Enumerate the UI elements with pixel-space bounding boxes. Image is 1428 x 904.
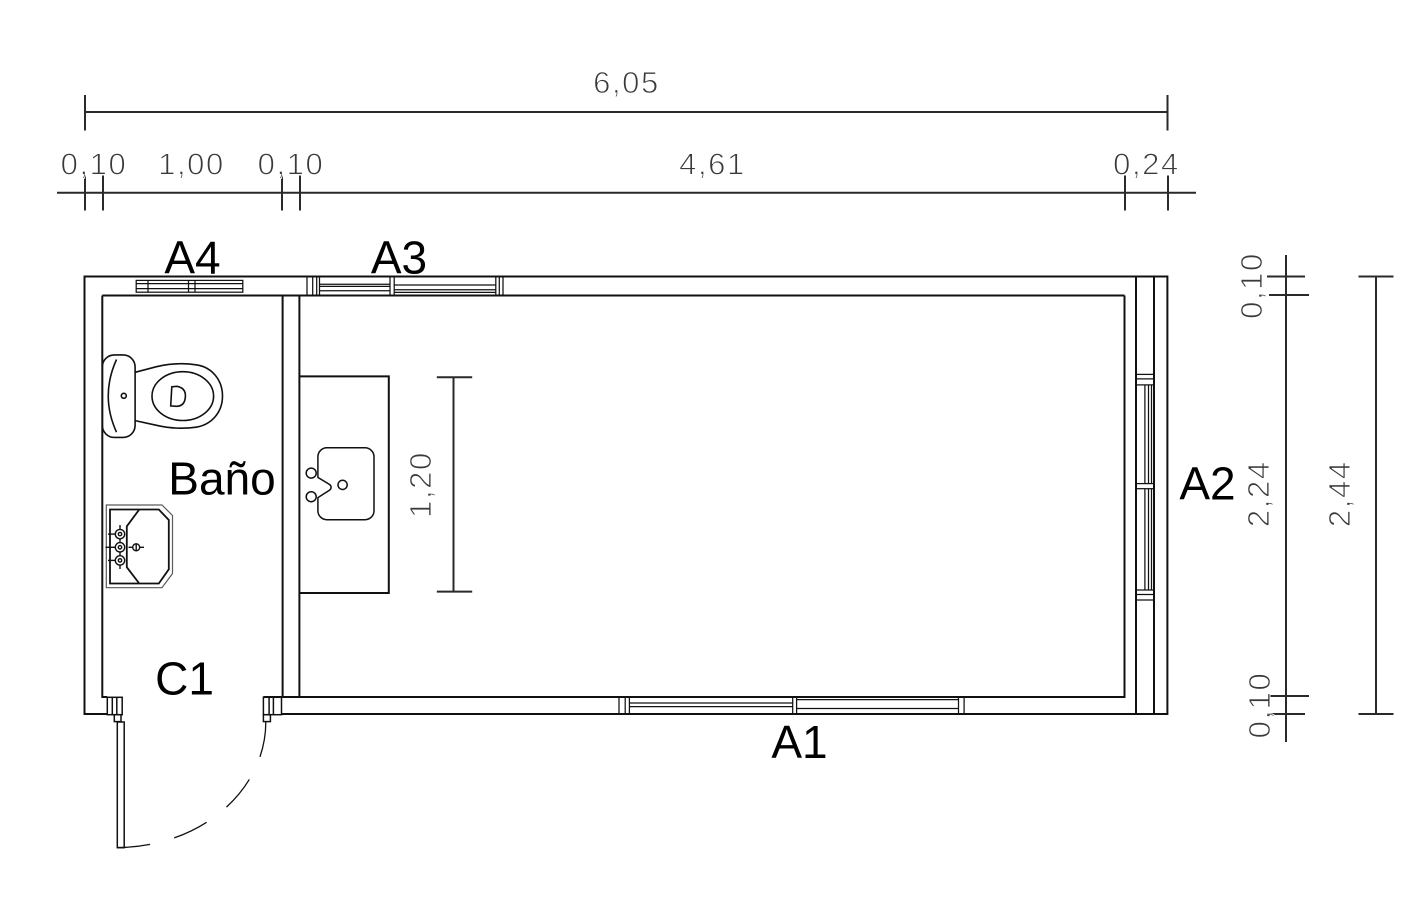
- svg-text:0,10: 0,10: [1234, 252, 1269, 319]
- svg-text:2,24: 2,24: [1241, 460, 1276, 527]
- svg-text:A1: A1: [771, 716, 827, 768]
- svg-text:1,00: 1,00: [158, 147, 225, 182]
- svg-text:A3: A3: [371, 232, 427, 284]
- svg-text:6,05: 6,05: [593, 65, 660, 100]
- svg-text:C1: C1: [155, 653, 214, 705]
- svg-text:0,10: 0,10: [61, 147, 128, 182]
- svg-text:0,10: 0,10: [258, 147, 325, 182]
- svg-text:0,24: 0,24: [1113, 147, 1180, 182]
- svg-text:Baño: Baño: [168, 453, 275, 505]
- svg-text:0,10: 0,10: [1242, 672, 1277, 739]
- svg-text:2,44: 2,44: [1322, 460, 1357, 527]
- svg-text:A2: A2: [1179, 458, 1235, 510]
- svg-text:4,61: 4,61: [679, 147, 746, 182]
- svg-text:A4: A4: [164, 232, 220, 284]
- svg-text:1,20: 1,20: [403, 451, 438, 518]
